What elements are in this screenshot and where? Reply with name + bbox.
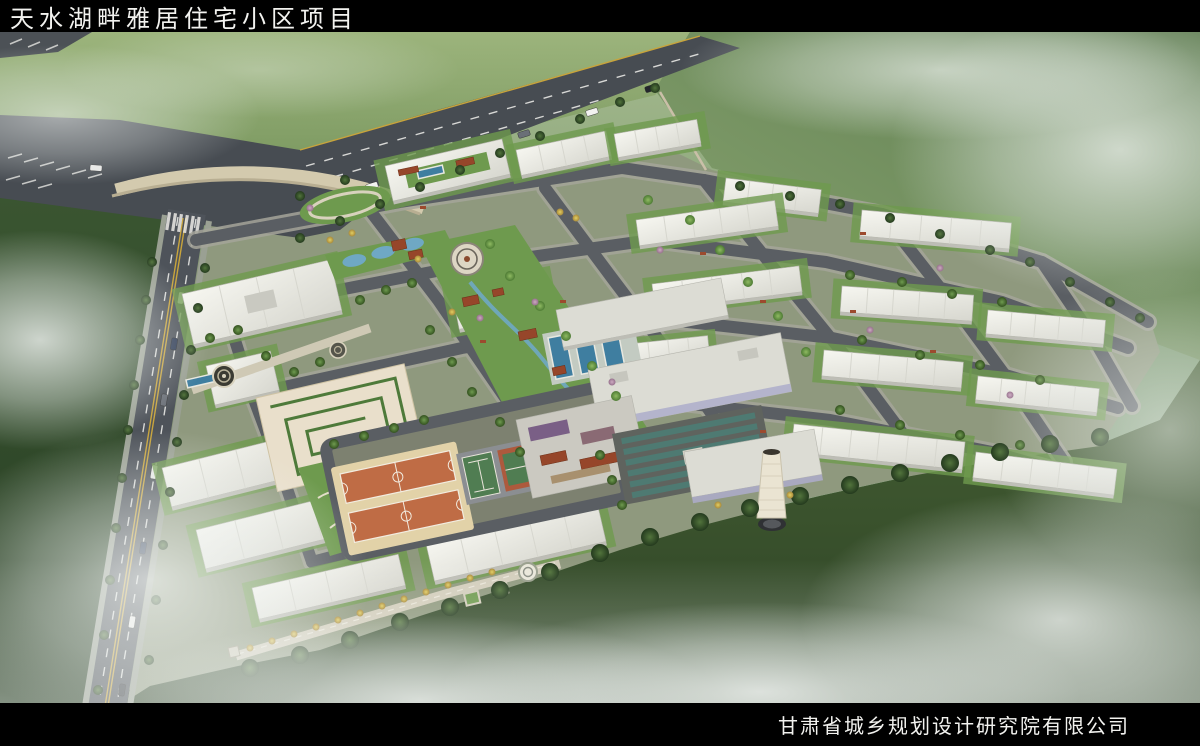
rendering-poster: 天水湖畔雅居住宅小区项目 甘肃省城乡规划设计研究院有限公司	[0, 0, 1200, 746]
project-title: 天水湖畔雅居住宅小区项目	[10, 0, 358, 34]
title-band: 天水湖畔雅居住宅小区项目	[0, 0, 1200, 32]
credit-band: 甘肃省城乡规划设计研究院有限公司	[0, 703, 1200, 746]
aerial-rendering	[0, 0, 1200, 746]
company-name: 甘肃省城乡规划设计研究院有限公司	[778, 710, 1130, 739]
